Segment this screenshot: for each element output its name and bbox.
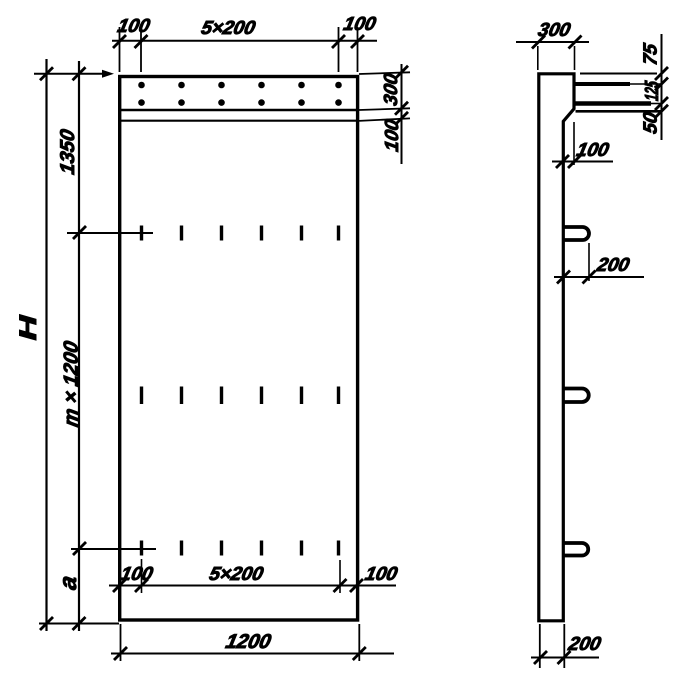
svg-text:200: 200 [566,634,603,655]
svg-text:125: 125 [642,80,662,102]
svg-text:100: 100 [382,118,403,154]
svg-text:100: 100 [575,140,611,161]
svg-text:m × 1200: m × 1200 [61,340,83,429]
svg-text:100: 100 [342,14,378,35]
svg-text:H: H [15,314,41,341]
svg-text:5×200: 5×200 [199,18,257,39]
svg-text:200: 200 [594,255,631,276]
svg-text:300: 300 [536,20,572,41]
svg-text:5×200: 5×200 [207,564,265,585]
svg-text:100: 100 [116,16,152,37]
svg-text:100: 100 [363,564,399,585]
svg-text:1350: 1350 [57,128,79,176]
svg-text:100: 100 [119,564,155,585]
svg-text:50: 50 [641,110,662,135]
svg-text:1200: 1200 [224,631,274,653]
svg-text:300: 300 [381,72,402,108]
svg-text:75: 75 [641,42,662,67]
